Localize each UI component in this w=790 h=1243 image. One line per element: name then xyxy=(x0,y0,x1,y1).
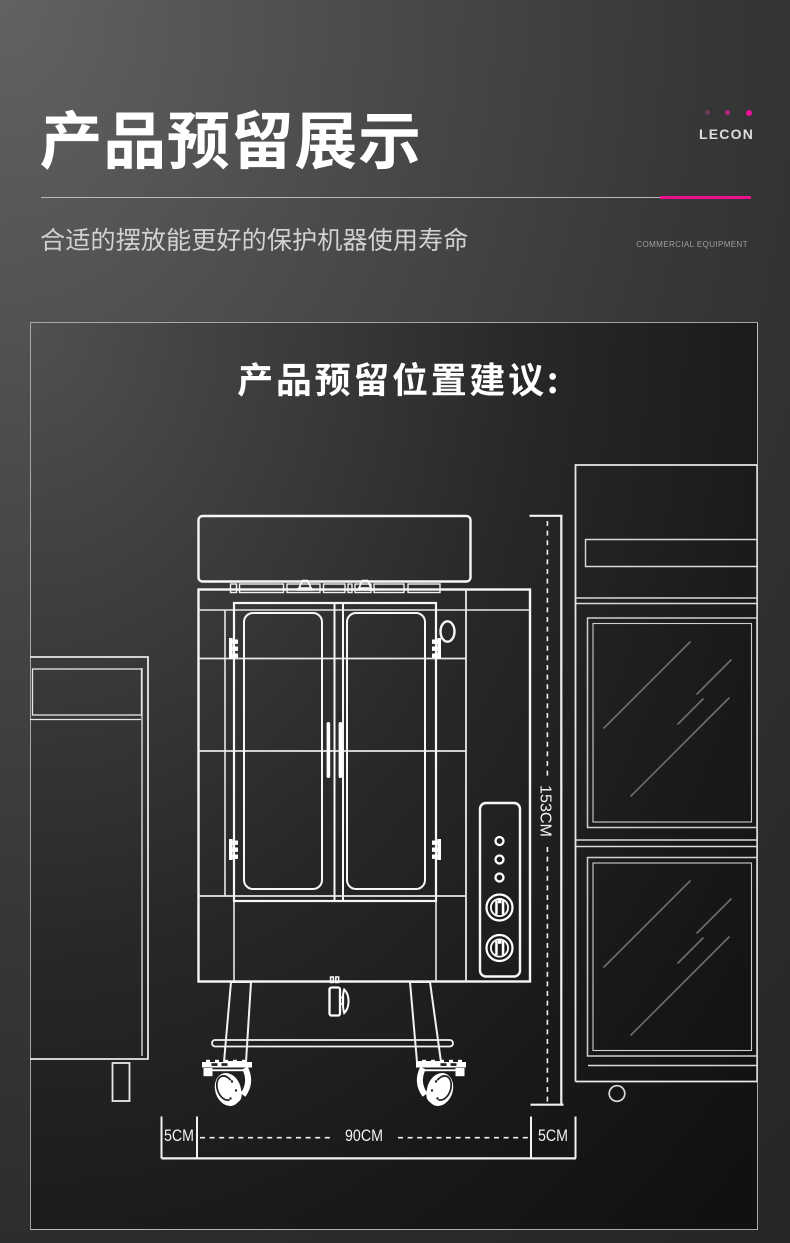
svg-text:5CM: 5CM xyxy=(538,1126,568,1145)
svg-text:90CM: 90CM xyxy=(345,1126,383,1145)
svg-text:5CM: 5CM xyxy=(164,1126,194,1145)
svg-text:153CM: 153CM xyxy=(537,785,554,837)
